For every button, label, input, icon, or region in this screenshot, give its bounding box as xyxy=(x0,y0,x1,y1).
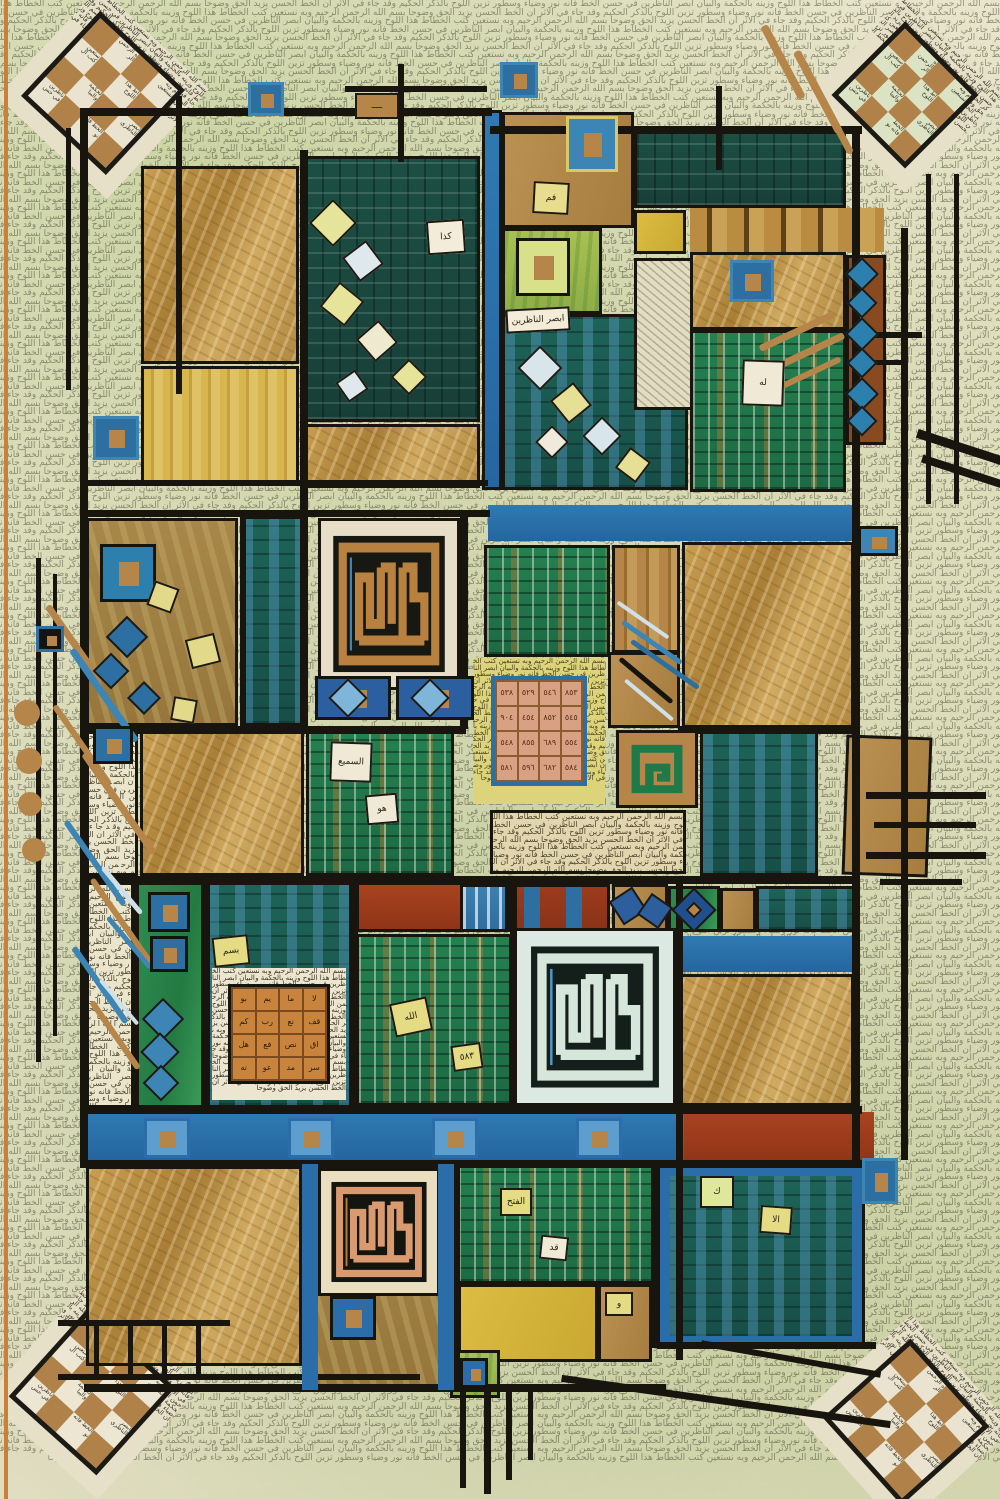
panel-manuscript-band: بسم الله الرحمن الرحيم وبه نستعين كتب ال… xyxy=(490,810,686,874)
calligraphy-plaque-10: ك xyxy=(700,1176,734,1208)
panel-green-blue-busy-panel xyxy=(356,934,512,1106)
window-motif-52 xyxy=(858,526,898,556)
magic-square-yellow-cell: ٥٤٨ xyxy=(497,732,517,755)
window-gold-center-40 xyxy=(304,1131,321,1148)
artwork-canvas: بسم الله الرحمن الرحيم وبه نستعين كتب ال… xyxy=(0,0,1000,1499)
gold-dot-2 xyxy=(18,792,42,816)
magic-square-orange-cell: ما xyxy=(280,989,302,1010)
window-motif-35 xyxy=(150,936,188,972)
magic-square-orange-cell: يم xyxy=(257,989,279,1010)
magic-square-orange-cell: مد xyxy=(280,1058,302,1079)
frame-line-41 xyxy=(460,1388,466,1488)
panel-tan-tiny-panel xyxy=(720,888,756,932)
panel-gold-panel-bottom xyxy=(86,1166,302,1366)
kufic-allah-motif-bottom xyxy=(321,1171,437,1293)
panel-green-grid-bottom xyxy=(456,1164,654,1284)
calligraphy-plaque-13: ــــ xyxy=(355,93,399,119)
calligraphy-plaque-0: كذا xyxy=(426,219,466,256)
magic-square-orange-cell: لا xyxy=(304,989,326,1010)
window-gold-center-48 xyxy=(514,74,528,89)
gold-dot-3 xyxy=(22,838,46,862)
calligraphy-plaque-1: فم xyxy=(532,181,570,215)
window-gold-center-54 xyxy=(875,1173,888,1192)
frame-line-20 xyxy=(652,1162,660,1348)
frame-line-1 xyxy=(84,108,492,116)
frame-line-25 xyxy=(345,86,487,92)
window-motif-51 xyxy=(93,726,133,764)
magic-square-yellow-border: بسم الله الرحمن الرحيم وبه نستعين كتب ال… xyxy=(473,658,605,804)
frame-line-10 xyxy=(84,1160,876,1168)
frame-line-47 xyxy=(94,1320,99,1380)
frame-line-23 xyxy=(176,96,182,394)
panel-blue-strip-right xyxy=(680,936,854,972)
window-gold-center-50 xyxy=(109,430,126,448)
window-motif-42 xyxy=(576,1118,622,1158)
frame-line-48 xyxy=(128,1320,133,1380)
magic-square-yellow-cell: ٥٩٦ xyxy=(519,757,539,780)
panel-gold-streak-panel xyxy=(141,366,299,486)
frame-line-21 xyxy=(84,1384,666,1392)
window-gold-center-6 xyxy=(584,133,603,157)
magic-square-orange-border: بسم الله الرحمن الرحيم وبه نستعين كتب ال… xyxy=(212,968,346,1100)
gold-dot-0 xyxy=(14,700,40,726)
frame-line-16 xyxy=(352,880,358,1108)
window-gold-center-39 xyxy=(160,1131,177,1148)
window-motif-40 xyxy=(288,1118,334,1158)
frame-line-53 xyxy=(4,0,8,1499)
magic-square-yellow: ٨٥٣٥٤٦٥٢٩٥٣٨٥٤٥٨٥٢٤٥٤٩٠٤٥٥٤٦٨٩٨٥٥٥٤٨٥٨٤٦… xyxy=(491,676,587,786)
magic-square-yellow-cell: ٨٥٣ xyxy=(562,682,582,705)
calligraphy-plaque-7: هو xyxy=(365,793,399,826)
panel-teal-small-panel xyxy=(756,886,856,932)
window-motif-34 xyxy=(148,892,190,932)
window-motif-50 xyxy=(93,416,139,460)
panel-teal-column xyxy=(240,516,304,726)
magic-square-yellow-cell: ٥٤٦ xyxy=(540,682,560,705)
kufic-allah-motif-left-frame xyxy=(318,518,460,690)
window-motif-53 xyxy=(36,626,64,652)
panel-gold-panel-f8 xyxy=(680,974,854,1106)
magic-square-yellow-cell: ٩٠٤ xyxy=(497,707,517,730)
magic-square-orange-cell: قف xyxy=(304,1012,326,1033)
magic-square-orange-cell: اق xyxy=(304,1035,326,1056)
magic-square-orange-cell: رب xyxy=(257,1012,279,1033)
window-motif-48 xyxy=(500,62,538,98)
window-motif-19 xyxy=(100,544,156,602)
window-gold-center-7 xyxy=(534,256,553,280)
frame-line-8 xyxy=(84,876,856,884)
magic-square-yellow-cell: ٦٨٢ xyxy=(540,757,560,780)
frame-line-45 xyxy=(58,1320,230,1326)
kufic-allah-motif-center xyxy=(517,931,673,1103)
kufic-green-motif xyxy=(619,733,695,805)
frame-line-0 xyxy=(80,108,88,1168)
bar-motif-44 xyxy=(438,1164,454,1390)
panel-red-window-panel xyxy=(356,882,468,932)
window-gold-center-52 xyxy=(872,537,886,550)
frame-line-18 xyxy=(204,880,210,1108)
frame-line-50 xyxy=(196,1320,201,1380)
window-gold-center-41 xyxy=(448,1131,465,1148)
window-gold-center-51 xyxy=(107,739,121,755)
panel-blue-band-upper xyxy=(488,505,854,541)
kufic-allah-motif-bottom-frame xyxy=(318,1168,440,1296)
kufic-allah-motif-center-frame xyxy=(514,928,676,1106)
panel-hatch-panel xyxy=(634,258,698,410)
calligraphy-plaque-4: بسم xyxy=(212,934,251,968)
panel-red-band-lower xyxy=(684,1112,874,1164)
frame-line-24 xyxy=(66,128,71,390)
magic-square-orange-cell: نع xyxy=(280,1012,302,1033)
magic-square-orange-cell: هل xyxy=(233,1035,255,1056)
calligraphy-plaque-11: ٥٨٣ xyxy=(450,1042,483,1072)
panel-teal-diamond-panel xyxy=(302,156,480,422)
bar-motif-43 xyxy=(302,1164,318,1390)
magic-square-yellow-cell: ٥٨٤ xyxy=(562,757,582,780)
window-gold-center-42 xyxy=(592,1131,609,1148)
calligraphy-plaque-6: السميع xyxy=(329,741,372,782)
frame-line-31 xyxy=(866,792,986,799)
window-gold-center-46 xyxy=(471,1369,481,1382)
magic-square-orange-cell: كم xyxy=(233,1012,255,1033)
magic-square-yellow-cell: ٨٥٥ xyxy=(519,732,539,755)
frame-line-33 xyxy=(866,852,986,859)
frame-line-34 xyxy=(880,879,962,885)
window-motif-47 xyxy=(248,82,284,116)
window-gold-center-53 xyxy=(47,636,57,647)
calligraphy-plaque-3: له xyxy=(741,359,785,406)
frame-line-43 xyxy=(506,1388,512,1480)
frame-line-30 xyxy=(954,174,959,504)
panel-blue-window-panel xyxy=(460,884,508,932)
panel-blue-framed-teal-panel xyxy=(660,1166,862,1346)
panel-darkgreen-lower-panel xyxy=(690,330,846,492)
magic-square-yellow-cell: ٤٥٤ xyxy=(519,707,539,730)
frame-line-2 xyxy=(490,126,862,134)
magic-square-orange-cell: بو xyxy=(233,989,255,1010)
window-gold-center-35 xyxy=(164,948,178,963)
frame-line-6 xyxy=(84,726,466,734)
calligraphy-plaque-12: الا xyxy=(759,1205,793,1235)
frame-line-44 xyxy=(528,1388,533,1460)
magic-square-yellow-cell: ٥٢٩ xyxy=(519,682,539,705)
magic-square-orange: لامايمبوقفنعربكماقنصفعهلسرمدعونه xyxy=(228,984,330,1084)
magic-square-yellow-cell: ٦٨٩ xyxy=(540,732,560,755)
window-gold-center-45 xyxy=(346,1310,363,1328)
magic-square-yellow-cell: ٥٣٨ xyxy=(497,682,517,705)
magic-square-orange-cell: فع xyxy=(257,1035,279,1056)
window-gold-center-34 xyxy=(163,905,178,922)
magic-square-orange-cell: عو xyxy=(257,1058,279,1079)
window-gold-center-47 xyxy=(261,94,274,108)
frame-line-32 xyxy=(874,822,976,828)
frame-line-5 xyxy=(84,510,490,517)
magic-square-orange-cell: نه xyxy=(233,1058,255,1079)
frame-line-29 xyxy=(926,174,931,504)
frame-line-42 xyxy=(484,1388,491,1494)
frame-line-15 xyxy=(676,880,683,1360)
panel-red-bars-panel xyxy=(508,884,610,932)
window-motif-45 xyxy=(330,1296,376,1340)
frame-line-46 xyxy=(58,1374,420,1380)
frame-line-13 xyxy=(240,513,246,727)
magic-square-yellow-cell: ٨٥٢ xyxy=(540,707,560,730)
panel-green-busy-panel xyxy=(484,545,610,657)
window-motif-39 xyxy=(144,1118,190,1158)
frame-line-27 xyxy=(716,86,722,170)
gold-dot-1 xyxy=(16,748,42,774)
kufic-allah-motif-left xyxy=(321,521,457,687)
panel-darkgreen-top-panel xyxy=(634,130,846,208)
panel-gold-panel-topleft xyxy=(141,166,299,364)
frame-line-7 xyxy=(678,726,856,734)
frame-line-28 xyxy=(901,228,908,1160)
frame-line-11 xyxy=(300,150,308,730)
calligraphy-plaque-2: ابصر الناظرين xyxy=(505,306,570,333)
window-motif-49 xyxy=(730,260,774,302)
frame-line-22 xyxy=(658,1342,876,1349)
calligraphy-plaque-14: و xyxy=(605,1292,633,1316)
window-motif-46 xyxy=(460,1358,488,1388)
panel-blue-divider xyxy=(482,110,502,490)
magic-square-orange-cell: سر xyxy=(304,1058,326,1079)
kufic-green-motif-frame xyxy=(616,730,698,808)
panel-gold-panel-d2 xyxy=(140,730,304,876)
panel-gold-panel-a4 xyxy=(302,424,480,488)
magic-square-yellow-cell: ٥٤٥ xyxy=(562,707,582,730)
calligraphy-plaque-8: الفتح xyxy=(500,1188,532,1216)
window-motif-7 xyxy=(516,238,570,296)
window-gold-center-49 xyxy=(745,274,761,292)
magic-square-orange-cell: نص xyxy=(280,1035,302,1056)
frame-line-49 xyxy=(162,1320,167,1380)
magic-square-yellow-cell: ٥٥٤ xyxy=(562,732,582,755)
window-gold-center-19 xyxy=(119,562,139,586)
window-motif-54 xyxy=(862,1158,898,1204)
magic-square-yellow-cell: ٥٨١ xyxy=(497,757,517,780)
calligraphy-plaque-9: قد xyxy=(539,1235,569,1262)
frame-line-4 xyxy=(84,480,488,486)
panel-gold-panel-c8 xyxy=(682,542,854,728)
window-motif-41 xyxy=(432,1118,478,1158)
tile-motif-25 xyxy=(170,696,198,724)
panel-teal-busy-panel xyxy=(700,730,818,876)
frame-line-9 xyxy=(84,1106,862,1114)
panel-yellow-small-panel xyxy=(634,210,686,254)
window-motif-6 xyxy=(566,116,618,172)
